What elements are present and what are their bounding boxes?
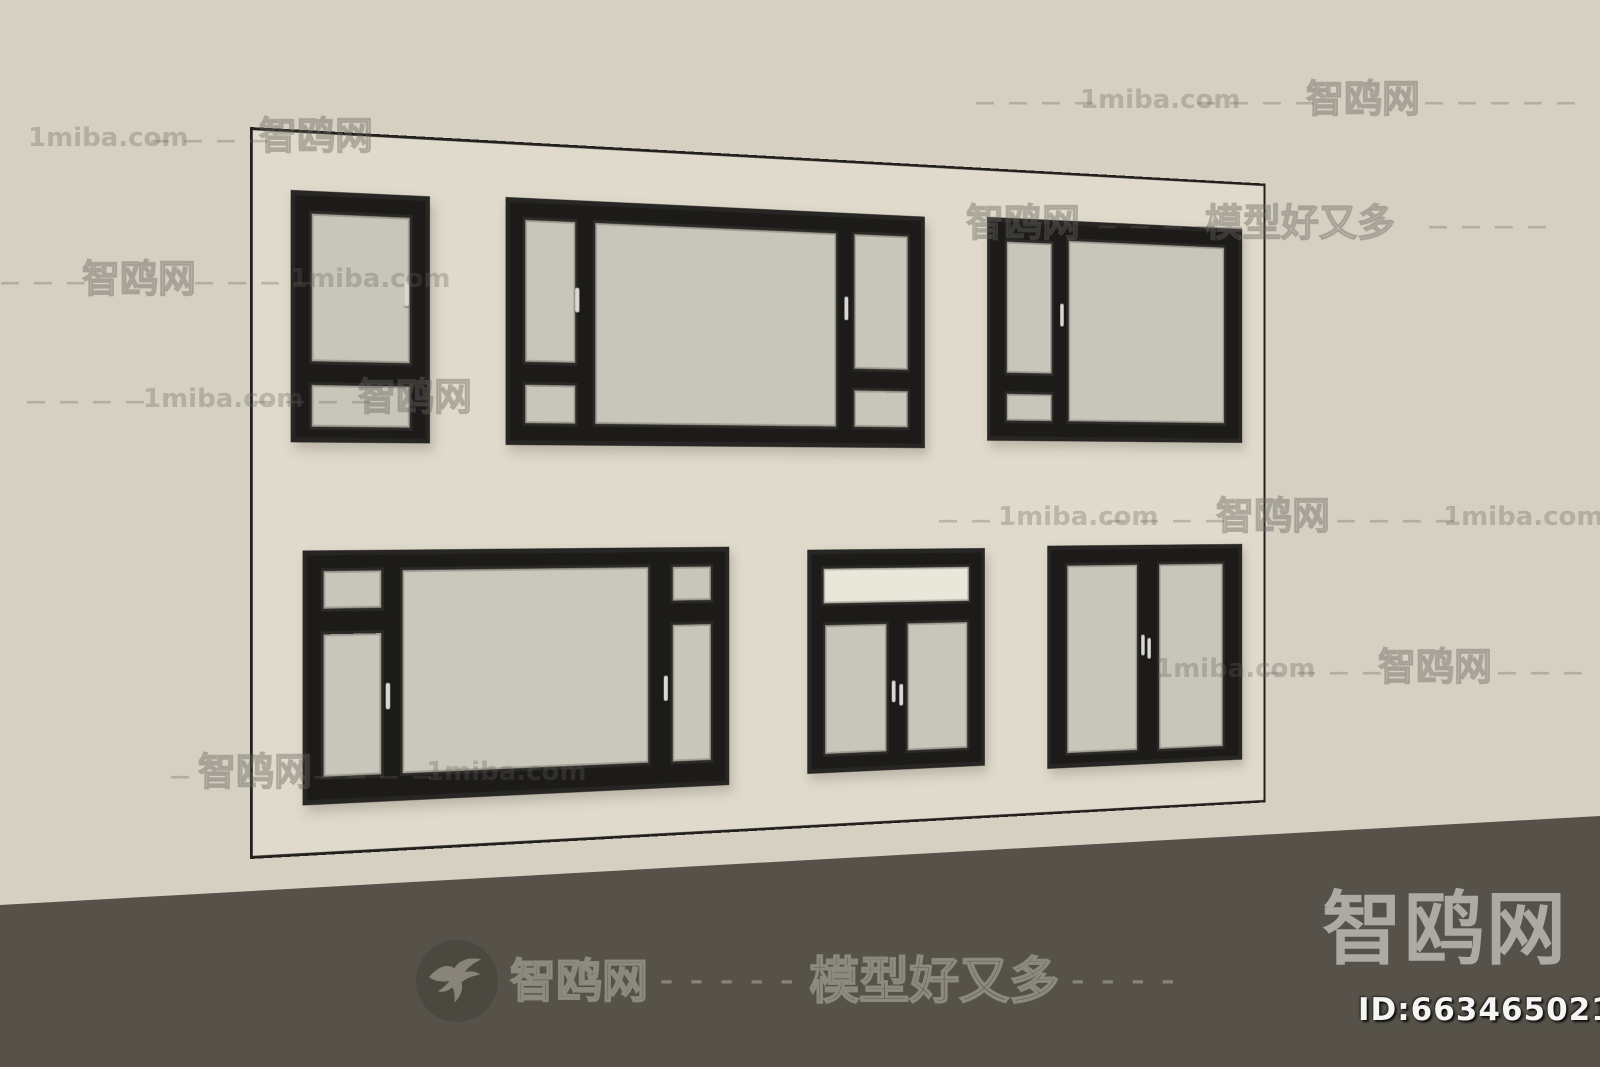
watermark-text: 智鸥网 — [1306, 80, 1420, 118]
window-4-left-lower-glass — [321, 630, 384, 780]
window-5 — [807, 548, 985, 774]
watermark-text: 1miba.com — [28, 125, 189, 151]
window-3-left-lower-glass — [1005, 391, 1054, 423]
window-4-right-upper-glass — [670, 564, 713, 604]
watermark-text: — — — — — [26, 391, 148, 411]
window-4-right-lower-glass — [670, 621, 713, 764]
watermark-text: — — — — — [975, 92, 1097, 112]
window-2-right-upper-glass — [852, 231, 910, 372]
model-id: ID:663465021 — [1358, 992, 1600, 1028]
window-5-transom-glass — [821, 564, 971, 606]
window-6 — [1047, 544, 1242, 769]
wall-panel — [250, 127, 1266, 859]
window-5-left-glass — [823, 621, 889, 757]
window-5-left-handle — [892, 681, 896, 703]
watermark-text: — — — — — [1336, 510, 1458, 530]
watermark-text: 智鸥网 — [82, 260, 196, 298]
window-4 — [303, 547, 730, 806]
window-2-right-handle — [844, 297, 848, 321]
window-2 — [506, 197, 925, 448]
watermark-text: 智鸥网 — [1378, 648, 1492, 686]
watermark-text: 1miba.com — [1443, 504, 1600, 530]
floor-stamp-brand: 智鸥网 — [510, 958, 648, 1004]
window-2-center-glass — [593, 220, 839, 429]
window-3 — [987, 217, 1242, 443]
watermark-text: — — — — [1497, 662, 1586, 682]
window-3-main-glass — [1067, 238, 1226, 426]
window-6-left-glass — [1065, 562, 1139, 756]
window-2-right-lower-glass — [852, 388, 910, 430]
floor-stamp-dashes-a: – – – – – — [660, 968, 797, 994]
window-5-right-glass — [905, 619, 969, 753]
corner-brand: 智鸥网 — [1322, 890, 1568, 970]
floor-stamp: 智鸥网 – – – – – 模型好又多 – – – – — [416, 938, 1178, 1024]
watermark-text: — — — — — — [1424, 92, 1579, 112]
watermark-text: — — — — — [1196, 92, 1318, 112]
window-4-right-handle — [664, 676, 668, 701]
watermark-text: — — — — — [1428, 216, 1550, 236]
window-2-left-upper-glass — [523, 217, 578, 366]
window-6-right-glass — [1157, 561, 1225, 751]
window-3-left-upper-glass — [1005, 239, 1054, 376]
watermark-text: — — [170, 766, 193, 786]
window-5-right-handle — [899, 684, 903, 706]
bird-logo-badge — [416, 940, 498, 1022]
window-6-right-handle — [1147, 638, 1150, 659]
seagull-icon — [425, 949, 489, 1013]
floor-stamp-slogan: 模型好又多 — [809, 956, 1059, 1006]
window-1 — [291, 190, 430, 444]
window-1-lower-glass — [309, 382, 412, 431]
watermark-text: 1miba.com — [1080, 87, 1241, 113]
watermark-text: — — — — — [1263, 662, 1385, 682]
window-1-handle — [404, 281, 408, 307]
floor-stamp-dashes-b: – – – – — [1071, 968, 1178, 994]
watermark-text: — — — — [0, 272, 89, 292]
window-4-center-glass — [400, 564, 651, 776]
window-3-handle — [1060, 304, 1064, 327]
window-6-left-handle — [1141, 635, 1144, 656]
window-2-left-handle — [575, 288, 579, 313]
window-1-upper-glass — [309, 211, 412, 367]
window-2-left-lower-glass — [523, 382, 578, 427]
window-4-left-upper-glass — [321, 567, 384, 611]
window-4-left-handle — [386, 683, 390, 710]
